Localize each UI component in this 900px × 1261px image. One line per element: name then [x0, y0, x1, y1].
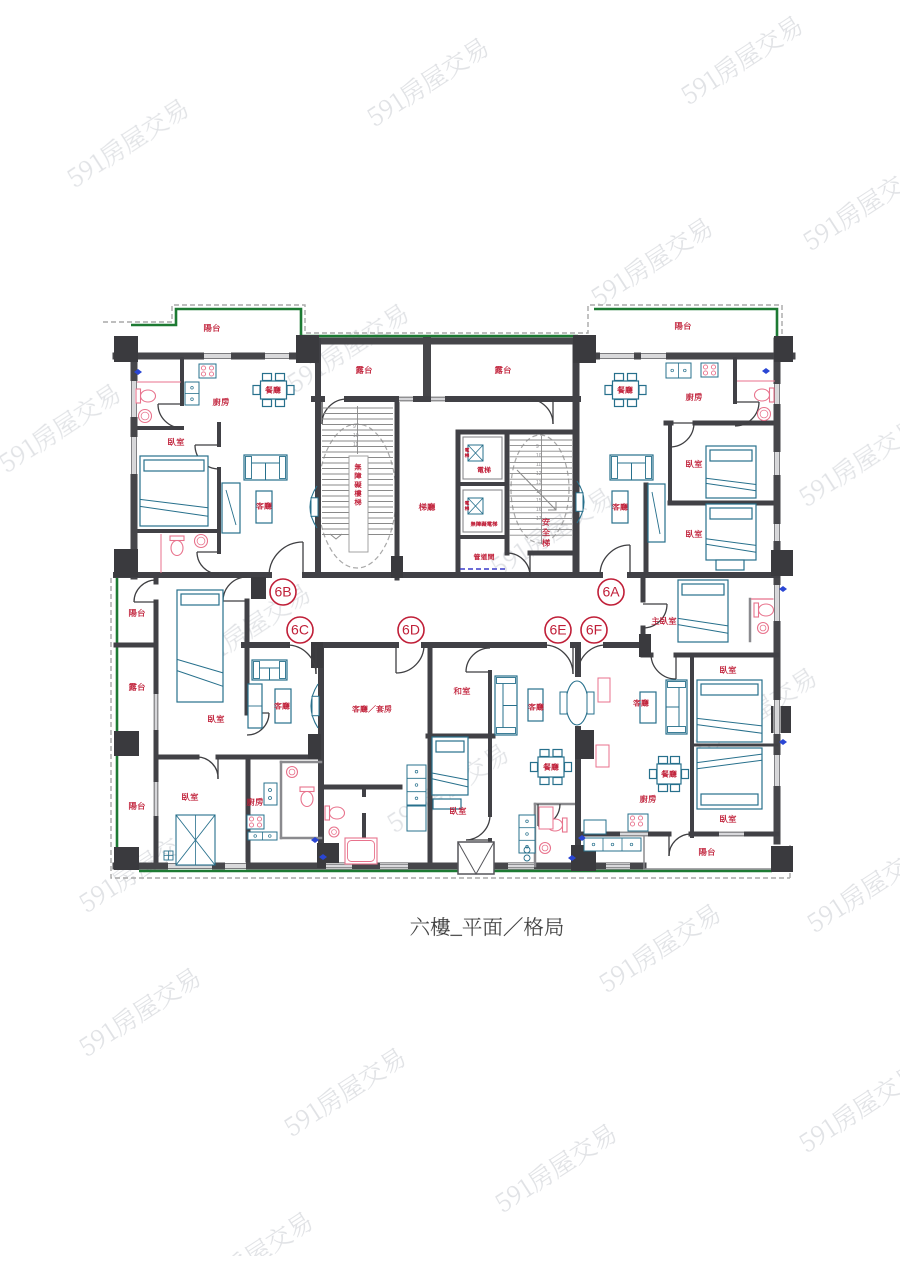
svg-text:10: 10 — [536, 453, 542, 459]
svg-text:11: 11 — [353, 442, 358, 448]
svg-text:11: 11 — [536, 462, 541, 468]
svg-text:15: 15 — [536, 498, 542, 504]
svg-text:9: 9 — [536, 444, 539, 450]
svg-text:16: 16 — [536, 507, 542, 513]
svg-text:6A: 6A — [602, 584, 620, 600]
svg-text:6D: 6D — [402, 622, 420, 638]
svg-text:6C: 6C — [291, 622, 309, 638]
svg-text:13: 13 — [536, 480, 542, 486]
svg-text:17: 17 — [536, 516, 542, 522]
svg-text:9: 9 — [353, 424, 356, 430]
svg-text:6E: 6E — [549, 622, 566, 638]
svg-text:6F: 6F — [586, 622, 602, 638]
svg-text:6B: 6B — [274, 584, 291, 600]
svg-text:10: 10 — [353, 433, 359, 439]
svg-text:12: 12 — [536, 471, 542, 477]
